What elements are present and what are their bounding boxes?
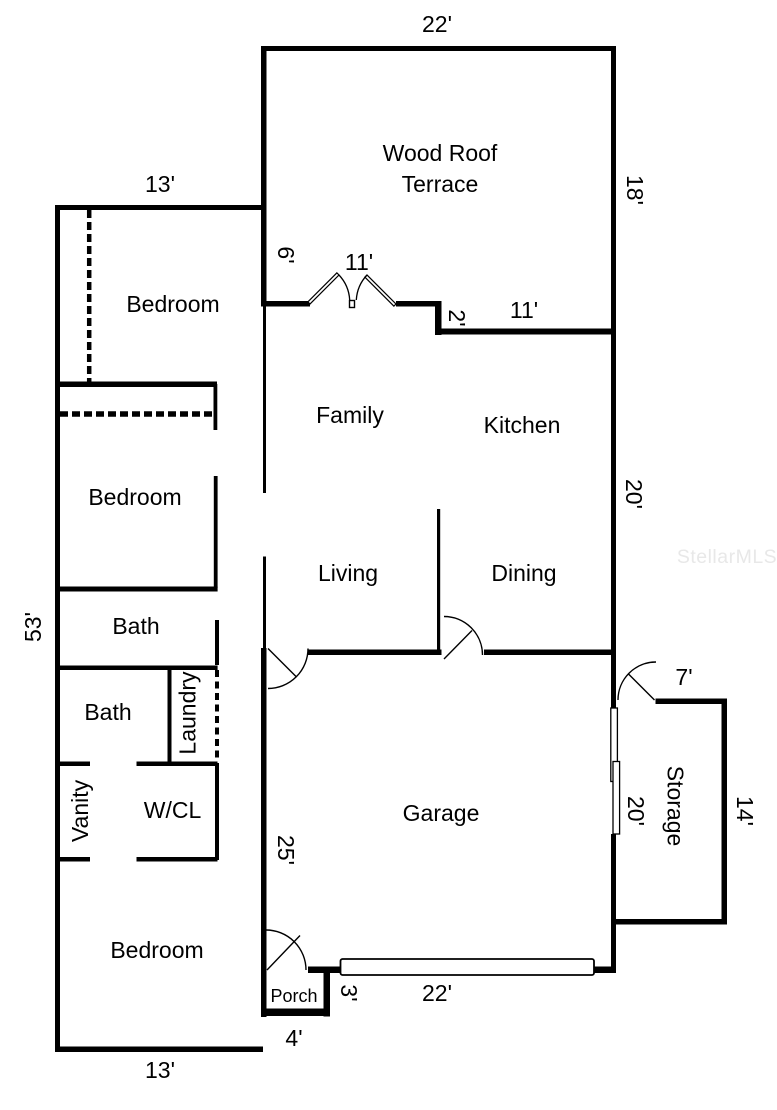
svg-text:Wood Roof: Wood Roof: [383, 140, 498, 166]
svg-text:20': 20': [621, 479, 647, 509]
svg-text:6': 6': [273, 246, 299, 263]
svg-text:Kitchen: Kitchen: [484, 412, 561, 438]
svg-text:22': 22': [422, 11, 452, 37]
svg-text:Garage: Garage: [403, 800, 480, 826]
svg-text:Bedroom: Bedroom: [110, 937, 203, 963]
svg-text:StellarMLS: StellarMLS: [677, 546, 777, 568]
svg-text:Bedroom: Bedroom: [126, 291, 219, 317]
svg-text:Bath: Bath: [84, 699, 131, 725]
svg-text:7': 7': [675, 664, 692, 690]
svg-text:Bedroom: Bedroom: [88, 484, 181, 510]
svg-text:Vanity: Vanity: [67, 779, 93, 842]
svg-text:53': 53': [20, 612, 46, 642]
svg-text:Porch: Porch: [270, 986, 317, 1006]
svg-text:13': 13': [145, 171, 175, 197]
svg-text:2': 2': [444, 309, 470, 326]
svg-text:18': 18': [622, 175, 648, 205]
svg-text:W/CL: W/CL: [144, 797, 202, 823]
svg-text:14': 14': [732, 796, 758, 826]
svg-text:Family: Family: [316, 402, 384, 428]
svg-text:Storage: Storage: [663, 766, 689, 847]
svg-text:22': 22': [422, 980, 452, 1006]
svg-text:25': 25': [273, 835, 299, 865]
svg-text:Laundry: Laundry: [175, 671, 201, 755]
svg-text:11': 11': [345, 249, 373, 275]
svg-text:Living: Living: [318, 560, 378, 586]
svg-text:20': 20': [623, 796, 649, 826]
svg-text:3': 3': [336, 984, 362, 1001]
svg-text:11': 11': [510, 297, 538, 323]
svg-text:13': 13': [145, 1057, 175, 1083]
svg-text:4': 4': [285, 1025, 302, 1051]
svg-text:Dining: Dining: [491, 560, 556, 586]
svg-text:Terrace: Terrace: [402, 171, 479, 197]
svg-text:Bath: Bath: [112, 613, 159, 639]
